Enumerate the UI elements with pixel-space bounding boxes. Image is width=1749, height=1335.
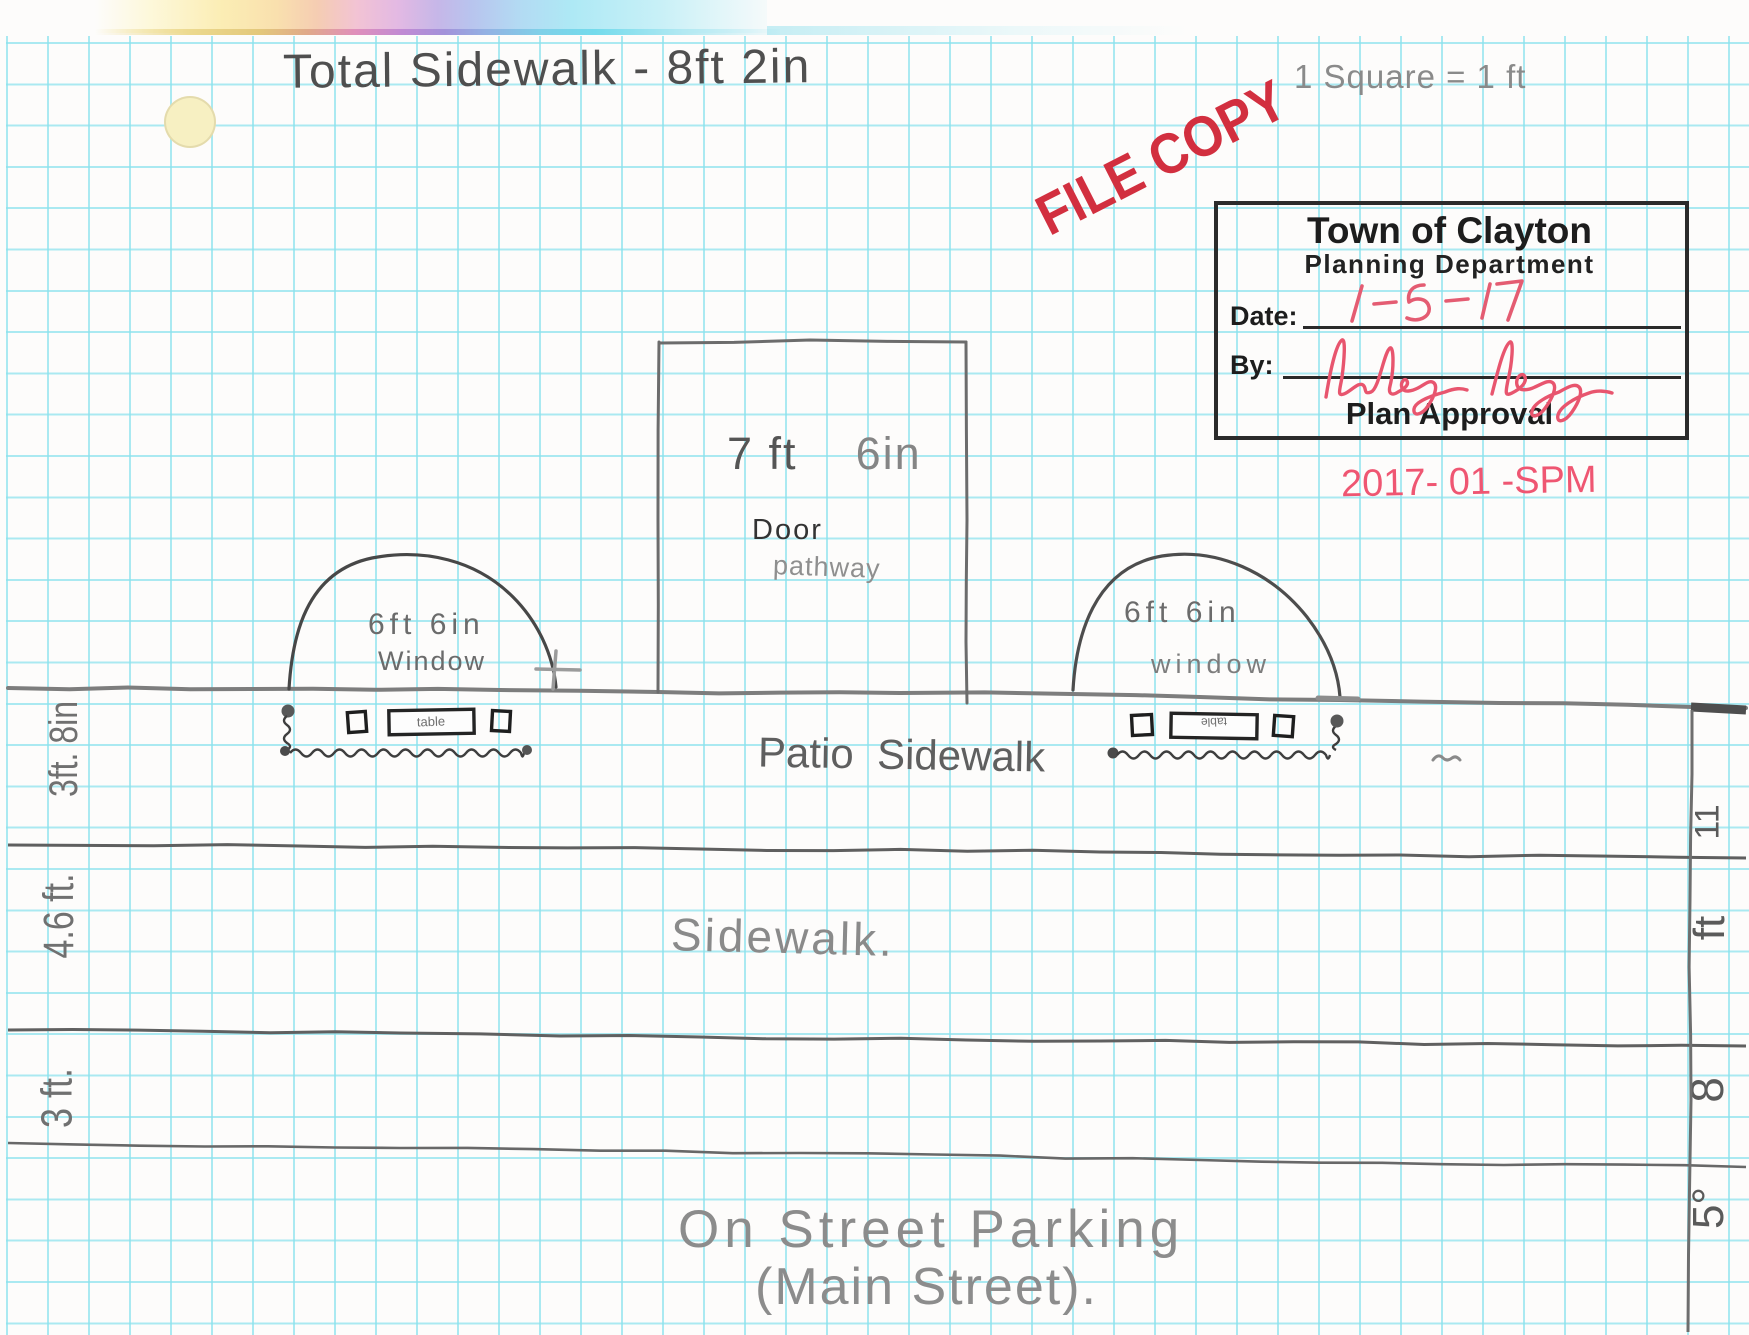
svg-text:table: table (417, 714, 446, 730)
svg-text:table: table (1200, 715, 1227, 730)
